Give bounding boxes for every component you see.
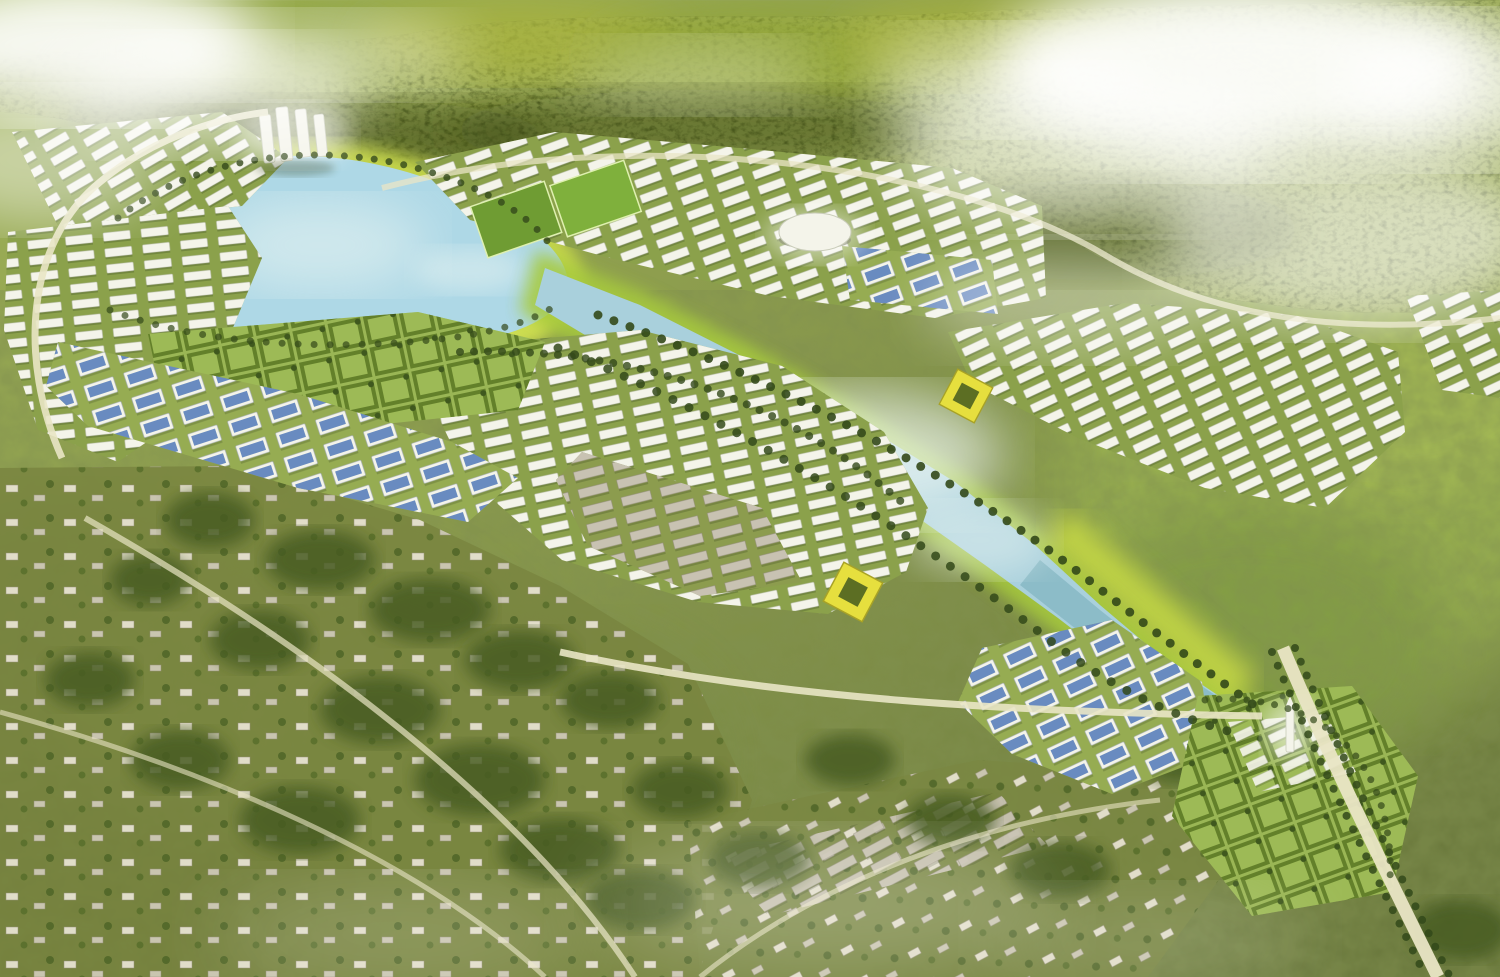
- cloud: [920, 245, 1220, 355]
- tree-clump: [110, 554, 190, 606]
- tree-clump: [265, 530, 375, 590]
- cloud: [130, 15, 470, 95]
- render-canvas: Bird's-eye daytime rendering of a planne…: [0, 0, 1500, 977]
- cloud-wisp: [580, 40, 820, 110]
- monument-shaft: [1286, 706, 1294, 752]
- cloud: [870, 30, 1130, 130]
- tower-shadow: [255, 160, 335, 176]
- central-dome-hall: [765, 209, 865, 261]
- water-glare: [415, 248, 525, 292]
- tree-clump: [560, 672, 660, 728]
- aerial-render: Bird's-eye daytime rendering of a planne…: [0, 0, 1500, 977]
- tree-clump: [805, 734, 895, 786]
- tree-clump: [632, 762, 728, 818]
- tree-clump: [45, 652, 135, 708]
- tree-clump: [210, 610, 310, 670]
- tree-clump: [905, 794, 995, 846]
- ground-haze: [590, 835, 1050, 975]
- tree-clump: [370, 578, 490, 642]
- tree-clump: [465, 630, 575, 690]
- tree-clump: [165, 492, 255, 548]
- dome-roof: [779, 213, 851, 251]
- tree-clump: [500, 818, 620, 882]
- water-glare: [910, 505, 1050, 575]
